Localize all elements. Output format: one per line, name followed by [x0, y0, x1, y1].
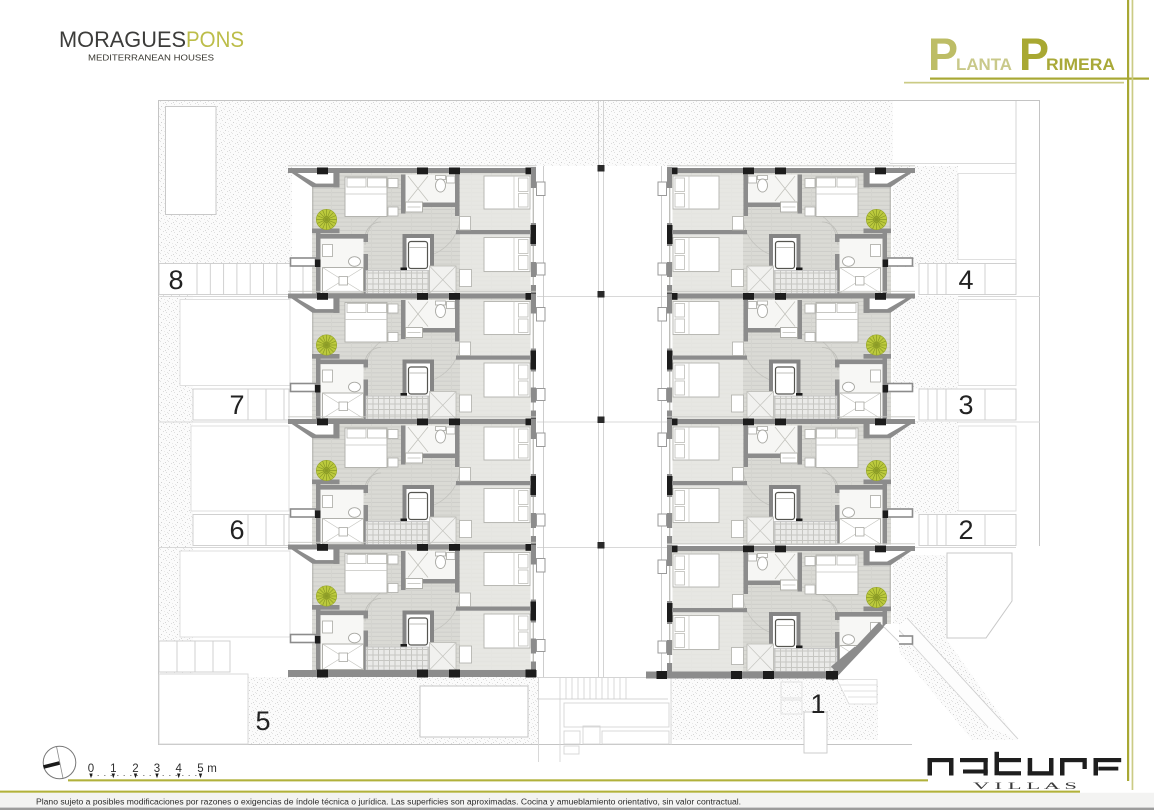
svg-text:5: 5	[255, 706, 270, 736]
svg-text:7: 7	[229, 390, 244, 420]
svg-text:MORAGUES: MORAGUES	[59, 27, 186, 52]
svg-text:m: m	[207, 763, 217, 775]
svg-text:1: 1	[810, 689, 825, 719]
svg-text:4: 4	[958, 265, 973, 295]
svg-text:P: P	[928, 29, 958, 80]
svg-text:LANTA: LANTA	[956, 55, 1012, 74]
svg-text:3: 3	[958, 390, 973, 420]
svg-text:P: P	[1019, 29, 1049, 80]
svg-text:0: 0	[88, 763, 94, 775]
svg-text:4: 4	[175, 763, 182, 775]
svg-text:6: 6	[229, 515, 244, 545]
svg-text:1: 1	[110, 763, 116, 775]
svg-text:2: 2	[958, 515, 973, 545]
svg-text:Plano sujeto a posibles modifi: Plano sujeto a posibles modificaciones p…	[36, 797, 741, 807]
svg-text:5: 5	[197, 763, 203, 775]
svg-text:RIMERA: RIMERA	[1046, 55, 1115, 74]
svg-text:V I L L A S: V I L L A S	[973, 781, 1077, 791]
svg-text:8: 8	[168, 265, 183, 295]
svg-text:2: 2	[132, 763, 138, 775]
svg-text:MEDITERRANEAN HOUSES: MEDITERRANEAN HOUSES	[88, 53, 214, 63]
svg-text:3: 3	[154, 763, 160, 775]
svg-text:PONS: PONS	[186, 27, 244, 52]
